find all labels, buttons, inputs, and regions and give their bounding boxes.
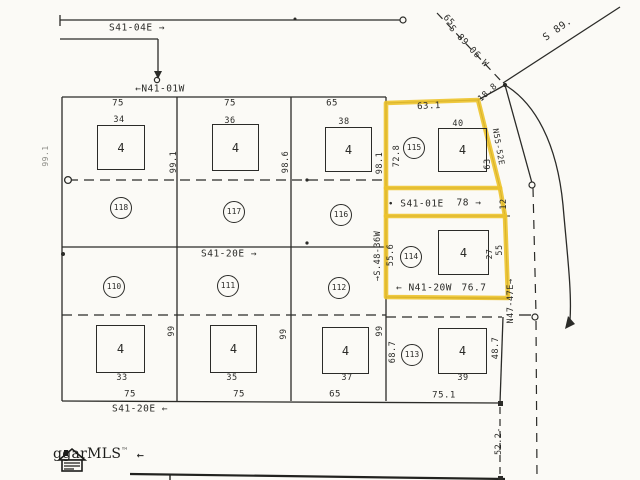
plat-linework <box>0 0 640 480</box>
dim-99-1: 99.1 <box>170 151 179 173</box>
road-dot: • <box>388 201 394 210</box>
lot-number-circle-116: 116 <box>330 204 352 226</box>
bearing-s41-20e-bottom: S41-20E ← <box>112 404 168 414</box>
bearing-s41-04e: S41-04E → <box>109 23 165 33</box>
mls-logo-arrow: ← <box>137 448 144 462</box>
pointer-line <box>60 39 158 72</box>
dim-75-d: 75 <box>233 391 245 400</box>
dim-75-a: 75 <box>112 100 124 109</box>
dist-76-7: 76.7 <box>462 283 487 293</box>
dim-48-7: 48.7 <box>492 337 501 359</box>
house-34: 34 <box>113 116 124 125</box>
lot-number-circle-118: 118 <box>110 197 132 219</box>
bearing-n41-20w: ← N41-20W <box>396 283 452 293</box>
mls-logo: ggarMLS™ ← <box>57 446 144 462</box>
bearing-s41-01e: S41-01E <box>400 199 444 209</box>
bearing-s41-20e-mid: S41-20E → <box>201 249 257 259</box>
building-square: 4 <box>210 325 257 373</box>
dim-99-a: 99 <box>168 325 177 336</box>
dim-55: 55 <box>496 244 505 255</box>
bottom-heavy-line <box>130 474 505 479</box>
dim-68-7: 68.7 <box>389 341 398 363</box>
s89-line <box>503 7 620 83</box>
n47-dashed-upper <box>533 188 536 314</box>
east-boundary-upper <box>505 85 532 183</box>
mls-trademark: ™ <box>121 446 128 454</box>
building-square: 4 <box>97 125 145 170</box>
house-38: 38 <box>338 118 349 127</box>
dim-98-6: 98.6 <box>282 151 291 173</box>
lot-number-circle-110: 110 <box>103 276 125 298</box>
dist-78: 78 → <box>457 198 482 208</box>
dim-55-6: 55.6 <box>387 244 396 266</box>
building-square: 4 <box>438 230 489 275</box>
house-33: 33 <box>116 374 127 383</box>
lot-number-circle-113: 113 <box>401 344 423 366</box>
lot-number-circle-111: 111 <box>217 275 239 297</box>
bearing-n47-47e: N47-47E→ <box>507 279 516 324</box>
building-square: 4 <box>438 328 487 374</box>
building-square: 4 <box>322 327 369 374</box>
building-square: 4 <box>438 128 487 172</box>
building-square: 4 <box>96 325 145 373</box>
dist-52-2: 52.2- <box>495 427 504 455</box>
dim-12: 12 <box>500 198 509 209</box>
building-square: 4 <box>325 127 372 172</box>
lot113-east-line <box>500 317 503 403</box>
dim-75-b: 75 <box>224 100 236 109</box>
lot-number-circle-112: 112 <box>328 277 350 299</box>
building-square: 4 <box>212 124 259 171</box>
dim-75-1: 75.1 <box>432 392 456 401</box>
dim-75-c: 75 <box>124 391 136 400</box>
dim-99-c: 99 <box>376 325 385 336</box>
plat-map: S41-04E →←N41-01W•S41-01E78 →S41-20E →S4… <box>0 0 640 480</box>
dim-63-1: 63.1 <box>417 102 441 112</box>
house-39: 39 <box>457 374 468 383</box>
lot-number-circle-114: 114 <box>400 246 422 268</box>
n47-dashed-lower <box>536 321 537 478</box>
house-40: 40 <box>452 120 463 129</box>
lot-number-circle-117: 117 <box>223 201 245 223</box>
dim-72-8: 72.8 <box>393 145 402 167</box>
mls-logo-text: ggarMLS™ <box>53 446 129 462</box>
lot-number-circle-115: 115 <box>403 137 425 159</box>
dim-65-b: 65 <box>329 391 341 400</box>
dim-98-1: 98.1 <box>376 152 385 174</box>
dim-65-a: 65 <box>326 100 338 109</box>
bearing-n41-01w: ←N41-01W <box>135 84 185 94</box>
house-35: 35 <box>226 374 237 383</box>
bearing-s48-36w: →S.48-36W <box>374 231 383 282</box>
dim-99-1-west: 99.1 <box>42 145 50 166</box>
dim-99-b: 99 <box>280 328 289 339</box>
house-37: 37 <box>341 374 352 383</box>
